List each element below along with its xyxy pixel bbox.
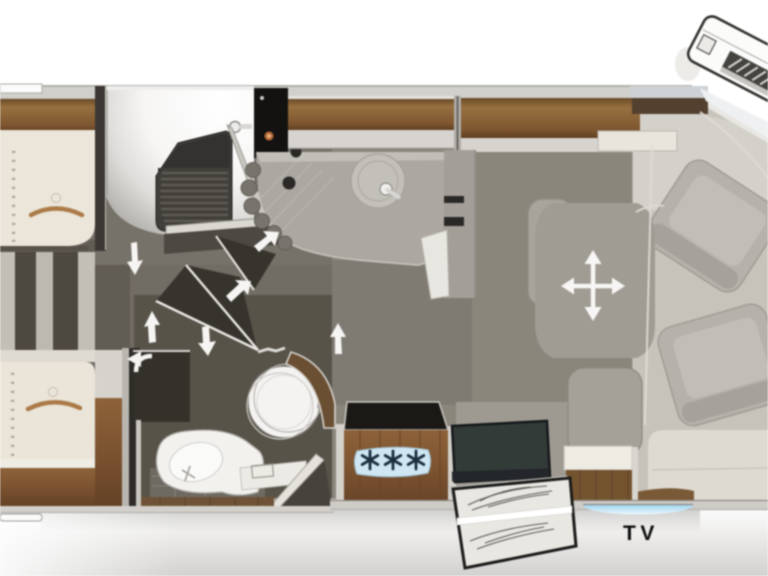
svg-text:TV: TV bbox=[623, 522, 659, 545]
